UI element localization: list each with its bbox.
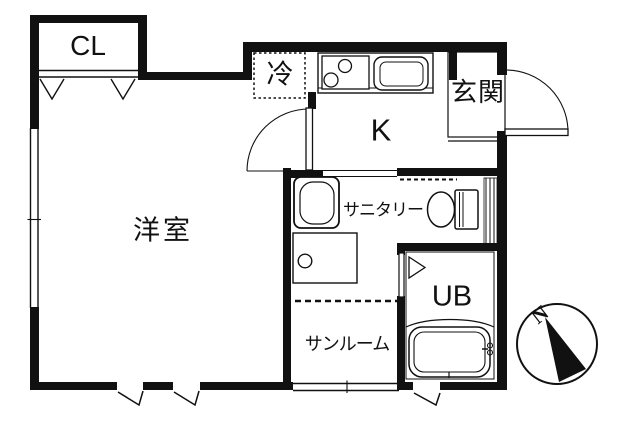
door-swing-icon (247, 108, 313, 171)
vent-icon (117, 381, 143, 405)
entrance-label: 玄関 (451, 79, 505, 105)
compass-icon (517, 304, 597, 384)
kitchen-label: K (371, 115, 392, 146)
sanitary-label: サニタリー (343, 202, 423, 219)
folding-door-icon (39, 71, 138, 100)
main-room-label: 洋室 (133, 218, 193, 245)
vent-icon (413, 382, 440, 405)
washing-machine-icon (294, 177, 339, 228)
plan-geometry (0, 0, 640, 423)
unit-bath-label: UB (432, 283, 472, 312)
toilet-icon (428, 190, 479, 229)
door-swing-icon (399, 253, 425, 297)
window-icon (28, 128, 42, 308)
opening (323, 171, 397, 177)
sunroom-label: サンルーム (305, 335, 389, 353)
stove-icon (322, 56, 369, 89)
window-icon (293, 381, 399, 394)
closet-label: CL (70, 32, 106, 60)
floor-plan: CL 洋室 K 玄関 冷 サニタリー UB サンルーム N (0, 0, 640, 423)
door-swing-icon (505, 70, 568, 136)
vent-icon (173, 381, 200, 405)
pipe-space-hatch (484, 178, 497, 244)
washbasin-icon (293, 233, 357, 283)
refrigerator-label: 冷 (267, 62, 294, 89)
bathtub-icon (406, 320, 494, 379)
sink-icon (374, 57, 428, 90)
